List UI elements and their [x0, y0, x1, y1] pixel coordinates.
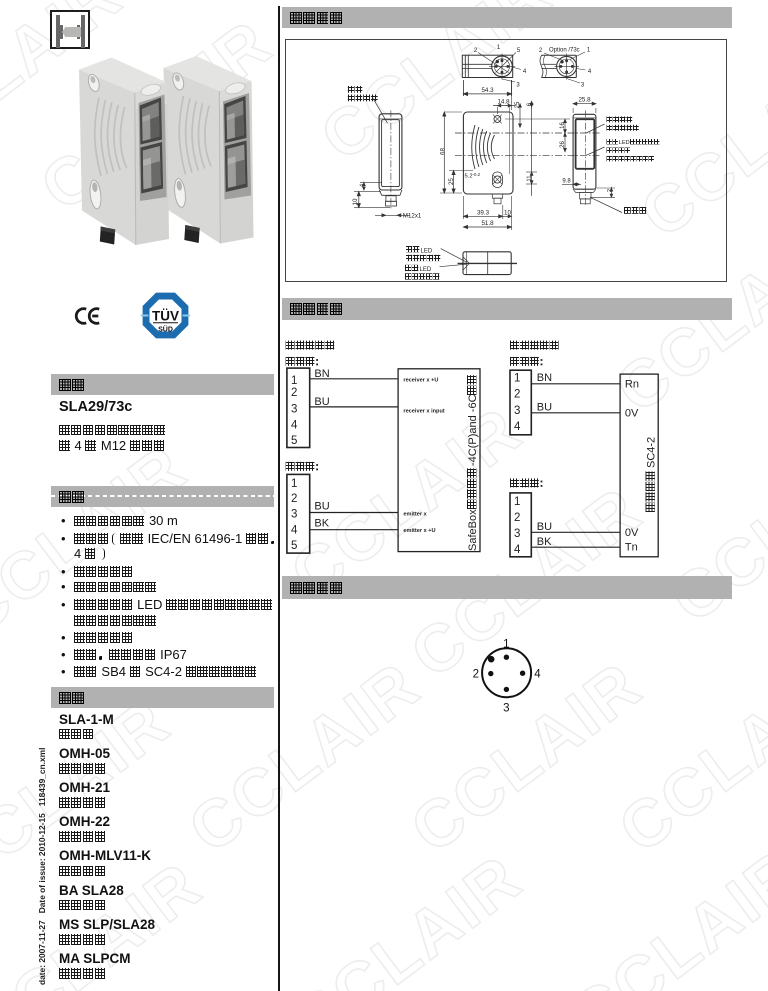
svg-text:2: 2 [291, 493, 297, 505]
svg-text:25.8: 25.8 [578, 97, 591, 104]
svg-text:5.2-0.2: 5.2-0.2 [465, 172, 481, 180]
svg-text:1: 1 [514, 373, 520, 385]
svg-text:10: 10 [352, 198, 359, 205]
svg-text:4: 4 [523, 69, 527, 75]
svg-text:BN: BN [314, 368, 329, 380]
svg-text:SC4-2: SC4-2 [646, 437, 658, 468]
svg-text:3: 3 [514, 405, 520, 417]
svg-text:TÜV: TÜV [152, 309, 179, 324]
svg-text:3: 3 [581, 83, 585, 89]
svg-text:BU: BU [537, 521, 552, 533]
svg-text:10: 10 [504, 210, 511, 217]
svg-text:3: 3 [514, 528, 520, 540]
svg-text:SÜD: SÜD [158, 325, 173, 334]
svg-text:4: 4 [514, 544, 521, 556]
svg-text:M12x1: M12x1 [403, 213, 422, 220]
svg-text:26: 26 [560, 141, 566, 148]
svg-text:11: 11 [527, 175, 533, 182]
svg-text:LED: LED [420, 267, 432, 273]
svg-text:BU: BU [314, 501, 329, 513]
svg-text:54.3: 54.3 [481, 87, 494, 94]
svg-text:9.8: 9.8 [562, 179, 571, 185]
svg-text:0V: 0V [625, 527, 639, 539]
svg-text:3: 3 [291, 509, 297, 521]
svg-text:0V: 0V [625, 408, 639, 420]
svg-text:CCLAIR: CCLAIR [277, 840, 535, 991]
svg-text:LED: LED [421, 248, 433, 254]
svg-text:2: 2 [473, 669, 479, 681]
svg-text:25: 25 [448, 178, 455, 185]
svg-text:receiver x +U: receiver x +U [403, 377, 438, 383]
svg-text:4: 4 [514, 421, 521, 433]
svg-text:25: 25 [515, 101, 521, 108]
svg-text:1: 1 [587, 48, 591, 54]
svg-text:14.8: 14.8 [497, 99, 510, 106]
svg-text:emitter x +U: emitter x +U [403, 528, 435, 534]
svg-text:2: 2 [474, 48, 478, 54]
svg-text:1: 1 [497, 45, 501, 51]
svg-text:3: 3 [291, 404, 297, 416]
svg-text:LED: LED [619, 140, 630, 146]
svg-text:3: 3 [516, 83, 520, 89]
svg-text:Option /73c: Option /73c [549, 48, 580, 54]
svg-text:2: 2 [514, 389, 520, 401]
svg-text:1: 1 [514, 496, 520, 508]
svg-text:4: 4 [588, 69, 592, 75]
svg-text:5: 5 [291, 435, 297, 447]
svg-text:2: 2 [607, 189, 613, 192]
svg-text:4: 4 [534, 669, 541, 681]
svg-text:2: 2 [514, 512, 520, 524]
svg-text:CCLAIR: CCLAIR [557, 834, 768, 991]
svg-text:4: 4 [291, 419, 298, 431]
svg-text:2: 2 [539, 48, 543, 54]
svg-text:3: 3 [503, 703, 509, 715]
svg-text:BN: BN [537, 372, 552, 384]
svg-text:BU: BU [314, 396, 329, 408]
svg-text:2: 2 [291, 387, 297, 399]
svg-text:SafeBox: SafeBox [467, 509, 479, 551]
svg-text:5: 5 [517, 48, 521, 54]
svg-text:CCLAIR: CCLAIR [175, 647, 433, 867]
svg-text:receiver x input: receiver x input [403, 409, 444, 415]
svg-text:BK: BK [537, 536, 552, 548]
svg-text:68: 68 [440, 148, 447, 155]
svg-text:Rn: Rn [625, 379, 639, 391]
svg-text:39.3: 39.3 [477, 210, 490, 217]
svg-text:-4C(P)and -6C: -4C(P)and -6C [467, 394, 479, 466]
svg-text:BK: BK [314, 517, 329, 529]
svg-text:5: 5 [291, 540, 297, 552]
svg-text:BU: BU [537, 401, 552, 413]
svg-text:4: 4 [291, 524, 298, 536]
svg-text:1: 1 [291, 375, 297, 387]
svg-text:emitter x: emitter x [403, 512, 427, 518]
svg-text:Tn: Tn [625, 542, 638, 554]
svg-text:1: 1 [503, 639, 509, 651]
svg-text:16: 16 [560, 122, 566, 129]
svg-text:1: 1 [291, 478, 297, 490]
svg-text:51.8: 51.8 [481, 220, 494, 227]
